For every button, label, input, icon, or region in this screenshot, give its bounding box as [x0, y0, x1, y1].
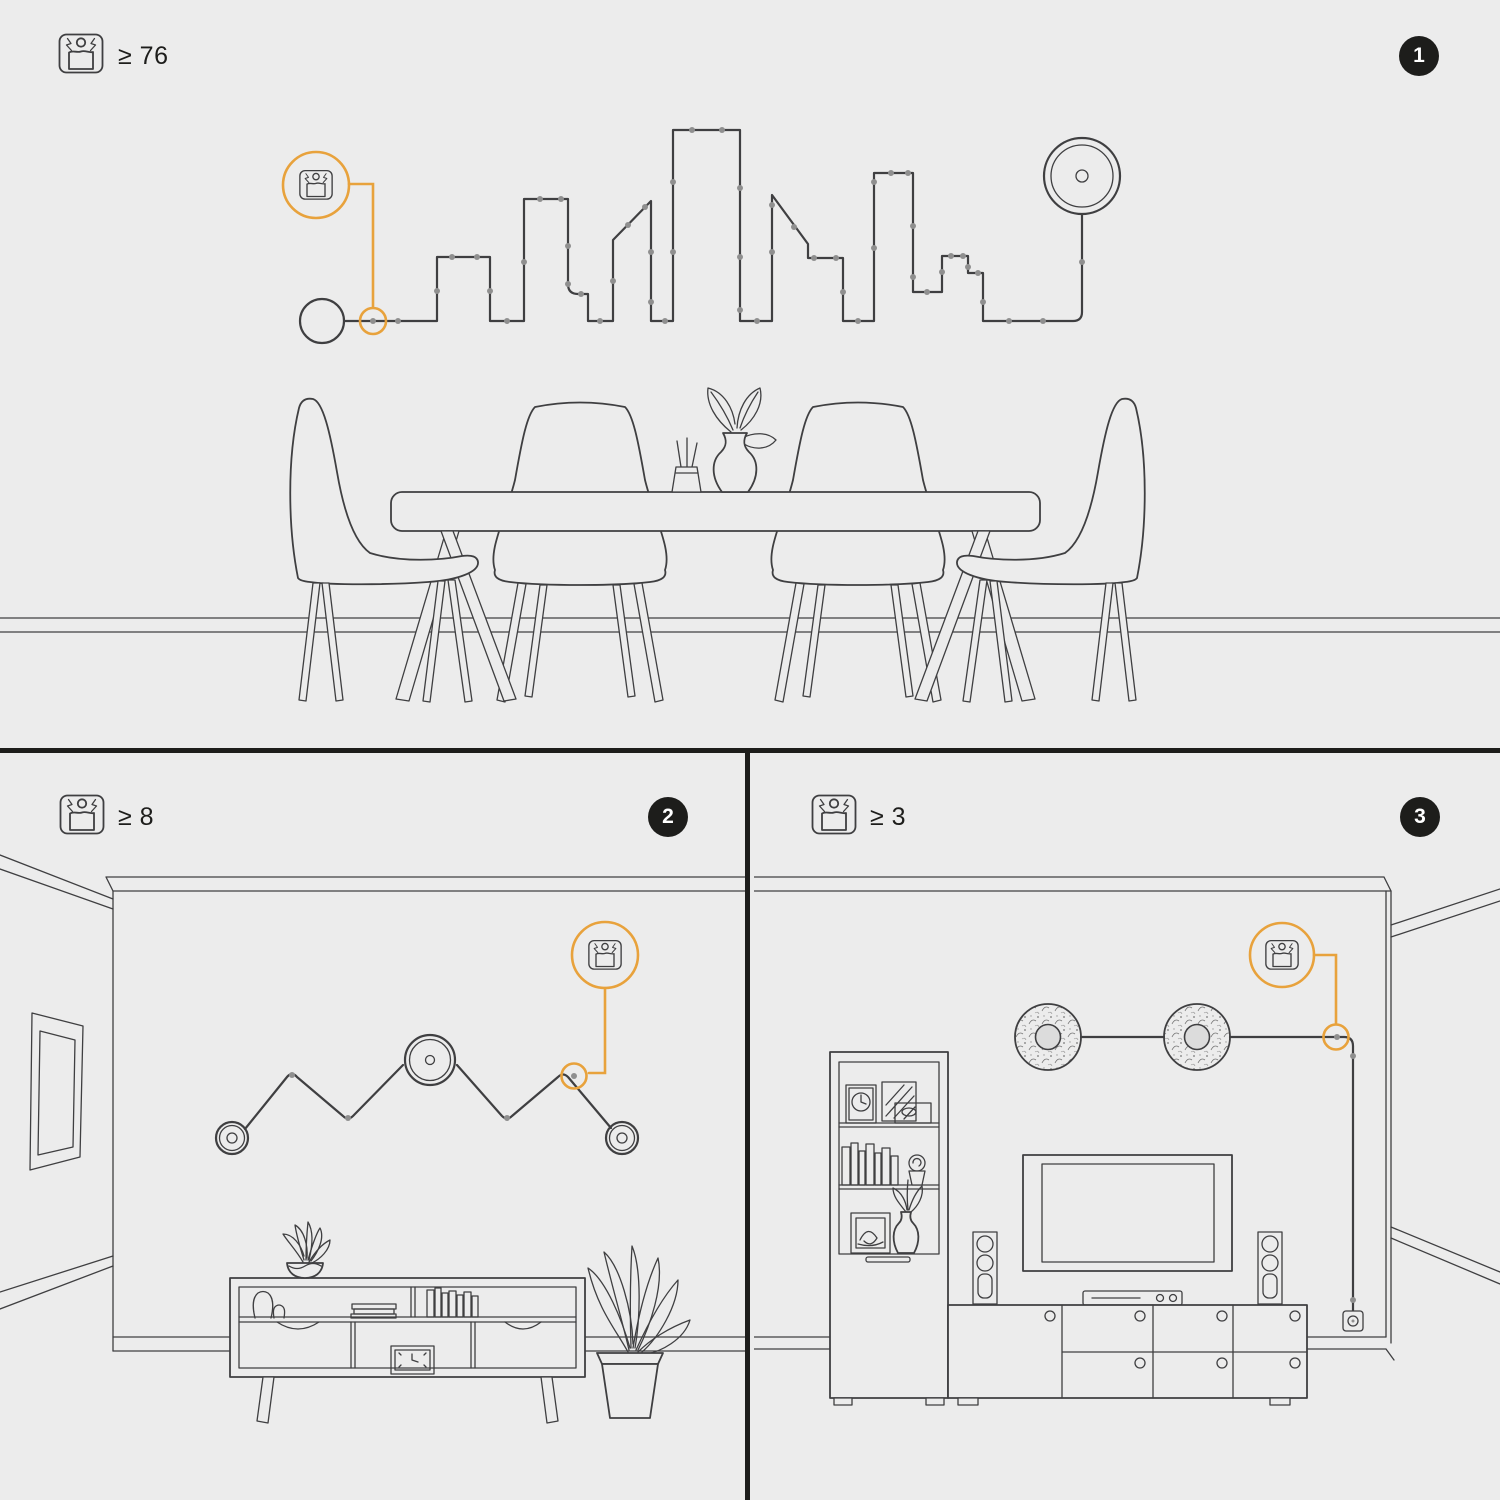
dining-chair [493, 403, 666, 703]
floor-plant [588, 1246, 690, 1418]
tv [1023, 1155, 1232, 1271]
tv-room-scene [754, 752, 1500, 1500]
wall-lamp [1015, 1004, 1081, 1070]
tv-cabinet [948, 1305, 1307, 1405]
speaker [1258, 1232, 1282, 1304]
bookshelf [830, 1052, 948, 1405]
speaker [973, 1232, 997, 1304]
instruction-sheet: ≥ 76 1 [0, 0, 1500, 1500]
clip-callout [283, 152, 386, 334]
cord-skyline-art [344, 127, 1085, 324]
wall-knob [405, 1035, 455, 1085]
media-player [1083, 1291, 1182, 1305]
dining-table [391, 492, 1040, 701]
wall-skirting [0, 618, 1500, 632]
wall-knob [216, 1122, 248, 1154]
cable-clip-icon [1266, 941, 1298, 970]
living-room-scene [0, 752, 745, 1500]
cable-clip-icon [589, 941, 621, 970]
wall-ball-ornament [300, 299, 344, 343]
sideboard [230, 1278, 585, 1423]
cord-zigzag-art [245, 1065, 611, 1129]
sideboard-plant [283, 1222, 330, 1278]
wall-outlet [1343, 1311, 1363, 1331]
dining-room-scene [0, 0, 1500, 748]
table-diffuser [672, 438, 701, 492]
dining-chair [771, 403, 944, 703]
clip-callout [1250, 923, 1349, 1050]
clip-callout [562, 922, 639, 1089]
wall-knob [606, 1122, 638, 1154]
cable-clip-icon [300, 171, 332, 200]
table-plant-vase [708, 388, 776, 492]
wall-lamp [1164, 1004, 1230, 1070]
picture-frame [30, 1013, 83, 1170]
wall-clock [1044, 138, 1120, 214]
room-walls [0, 855, 745, 1351]
panel-divider-vertical [745, 751, 750, 1500]
panel-divider-horizontal [0, 748, 1500, 753]
